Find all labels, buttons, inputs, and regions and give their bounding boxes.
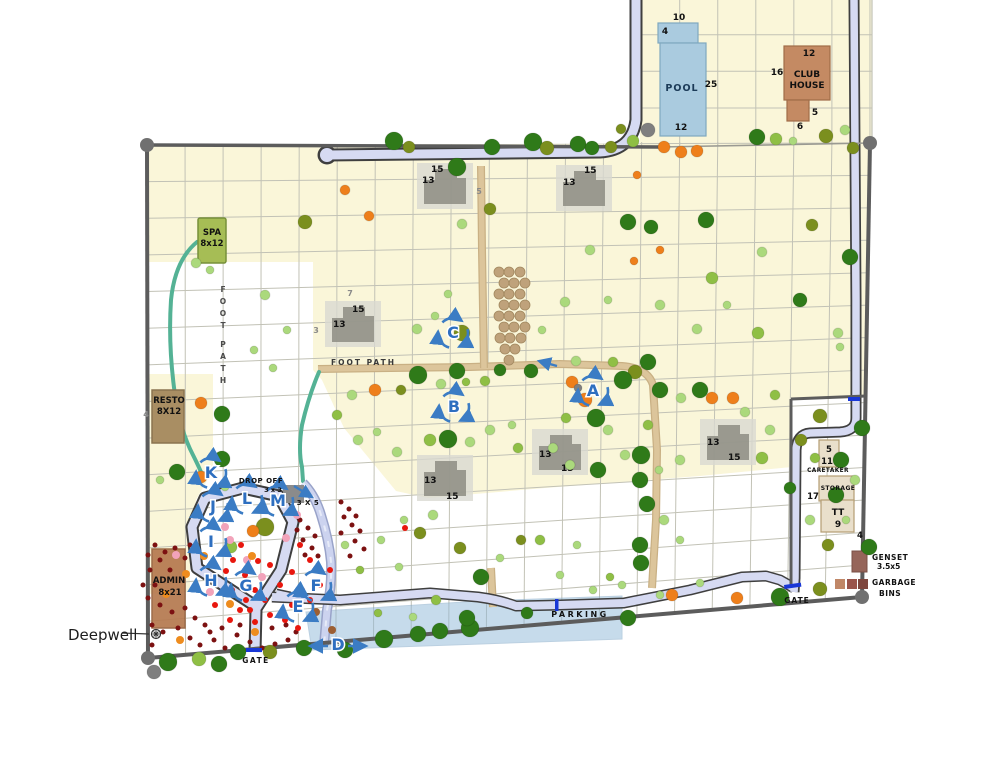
tree <box>428 510 438 520</box>
marker-letter: L <box>242 489 252 508</box>
gravel-dot <box>499 322 509 332</box>
flower-dot <box>267 612 273 618</box>
tree <box>560 297 570 307</box>
tree <box>211 656 227 672</box>
flower-dot <box>188 543 193 548</box>
tree <box>723 301 731 309</box>
flower-dot <box>208 630 213 635</box>
footpath-h-label: FOOT PATH <box>331 358 396 367</box>
tree <box>373 428 381 436</box>
flower-dot <box>362 547 367 552</box>
tree <box>454 542 466 554</box>
tree <box>756 452 768 464</box>
flower-dot <box>313 534 318 539</box>
tree <box>813 409 827 423</box>
tree <box>513 443 523 453</box>
gravel-dot <box>495 333 505 343</box>
tree <box>444 290 452 298</box>
tree <box>691 145 703 157</box>
tree <box>706 272 718 284</box>
flower-dot <box>289 569 295 575</box>
unit-gray-5: 5 <box>476 187 482 196</box>
clubhouse-n-below: 6 <box>797 122 803 132</box>
flower-dot <box>158 558 163 563</box>
tree <box>608 357 618 367</box>
tree <box>640 354 656 370</box>
tree <box>524 364 538 378</box>
flower-dot <box>188 636 193 641</box>
tree <box>840 125 850 135</box>
flower-dot <box>303 553 308 558</box>
tree <box>727 392 739 404</box>
tree <box>587 409 605 427</box>
tree <box>585 141 599 155</box>
marker-letter: I <box>208 532 214 551</box>
flower-dot <box>183 606 188 611</box>
resto-n-left: 4 <box>143 410 149 419</box>
tree <box>698 212 714 228</box>
tree <box>850 475 860 485</box>
flower-dot <box>307 557 313 563</box>
marker-letter: C <box>447 323 459 342</box>
tree <box>806 219 818 231</box>
tree <box>757 247 767 257</box>
tree <box>793 293 807 307</box>
flower-dot <box>277 582 283 588</box>
tree <box>819 129 833 143</box>
tree <box>396 385 406 395</box>
flower-dot <box>223 646 228 651</box>
site-plan-svg: 151315131513151315131513 ABCDEFGHIJKLM 1… <box>0 0 1000 768</box>
tree <box>192 652 206 666</box>
tree <box>206 266 214 274</box>
flower-dot <box>262 597 268 603</box>
unit-dim-15: 15 <box>584 166 597 176</box>
flower-dot <box>170 610 175 615</box>
flower-dot <box>270 626 275 631</box>
tree <box>195 397 207 409</box>
tree <box>643 420 653 430</box>
parking-label: PARKING <box>551 610 608 619</box>
tree <box>655 300 665 310</box>
gravel-dot <box>494 311 504 321</box>
flower-dot <box>339 500 344 505</box>
tree <box>805 515 815 525</box>
flower-dot <box>258 573 266 581</box>
tree <box>620 610 636 626</box>
garbage-line2: BINS <box>879 589 901 598</box>
tree <box>409 366 427 384</box>
tree <box>480 376 490 386</box>
unit-gray-7: 7 <box>347 289 353 298</box>
flower-dot <box>150 643 155 648</box>
marker-letter: G <box>239 576 252 595</box>
clubhouse-n-annex: 5 <box>812 108 818 118</box>
tree <box>449 363 465 379</box>
tree <box>770 133 782 145</box>
unit-dim-13: 13 <box>422 176 435 186</box>
flower-dot <box>293 511 301 519</box>
gravel-dot <box>504 355 514 365</box>
tree <box>692 324 702 334</box>
marker-letter: D <box>331 635 344 654</box>
tree <box>565 460 575 470</box>
flower-dot <box>146 596 151 601</box>
flower-dot <box>220 626 225 631</box>
tree <box>749 129 765 145</box>
flower-dot <box>353 539 358 544</box>
garbage-bin <box>835 579 845 589</box>
marker-letter: E <box>293 597 304 616</box>
flower-dot <box>310 546 315 551</box>
tree <box>752 327 764 339</box>
tree <box>484 203 496 215</box>
pool-n-bottom: 12 <box>675 123 688 133</box>
genset-line2: 3.5x5 <box>877 562 900 571</box>
tree <box>508 421 516 429</box>
flower-dot <box>286 638 291 643</box>
unit-dim-13: 13 <box>707 438 720 448</box>
tree <box>159 653 177 671</box>
gravel-dot <box>500 344 510 354</box>
gravel-dot <box>509 278 519 288</box>
tree <box>431 312 439 320</box>
tree <box>810 453 820 463</box>
tree <box>556 571 564 579</box>
tt-n-road: 4 <box>857 531 863 541</box>
gate-rear-label: GATE <box>784 596 810 605</box>
pool-n-right: 25 <box>705 80 718 90</box>
tt-line2: 9 <box>835 520 841 530</box>
flower-dot <box>301 538 306 543</box>
tree <box>833 328 843 338</box>
gravel-dot <box>515 267 525 277</box>
tree <box>606 573 614 581</box>
flower-dot <box>223 568 229 574</box>
flower-dot <box>153 543 158 548</box>
unit-gray-3: 3 <box>313 326 319 335</box>
clubhouse-annex <box>787 100 809 121</box>
flower-dot <box>176 636 184 644</box>
tree <box>605 141 617 153</box>
pool-label: POOL <box>665 83 698 94</box>
tree <box>632 446 650 464</box>
tree <box>620 450 630 460</box>
tree <box>632 537 648 553</box>
tree <box>614 371 632 389</box>
tree <box>813 582 827 596</box>
flower-dot <box>238 542 244 548</box>
tree <box>652 382 668 398</box>
tree <box>770 390 780 400</box>
flower-dot <box>148 568 153 573</box>
garbage-bin <box>847 579 857 589</box>
flower-dot <box>150 623 155 628</box>
flower-dot <box>316 554 321 559</box>
caretaker-label: CARETAKER <box>807 468 849 474</box>
tree <box>147 665 161 679</box>
tree <box>457 219 467 229</box>
genset-line1: GENSET <box>872 553 909 562</box>
tree <box>436 379 446 389</box>
tree <box>842 249 858 265</box>
corner-dot <box>141 651 155 665</box>
spa-line1: SPA <box>203 228 222 238</box>
unit-dim-15: 15 <box>728 453 741 463</box>
tree <box>641 123 655 137</box>
tree <box>473 569 489 585</box>
unit-cottage: 1513 <box>532 429 588 475</box>
corner-dot <box>863 136 877 150</box>
dropoff-label: DROP OFF <box>239 477 283 485</box>
clubhouse-n-left: 16 <box>771 68 784 78</box>
tree <box>585 245 595 255</box>
flower-dot <box>168 568 173 573</box>
flower-dot <box>347 507 352 512</box>
flower-dot <box>146 553 151 558</box>
tree <box>424 434 436 446</box>
flower-dot <box>252 587 258 593</box>
tree <box>740 407 750 417</box>
tree <box>639 496 655 512</box>
tree <box>854 420 870 436</box>
tree <box>459 610 475 626</box>
tree <box>627 135 639 147</box>
admin-line1: ADMIN <box>153 576 185 586</box>
clubhouse-line2: HOUSE <box>789 81 824 91</box>
tree <box>392 447 402 457</box>
tree <box>377 536 385 544</box>
flower-dot <box>348 554 353 559</box>
tree <box>296 640 312 656</box>
flower-dot <box>358 529 363 534</box>
tree <box>836 343 844 351</box>
flower-dot <box>183 556 188 561</box>
tree <box>385 132 403 150</box>
tree <box>414 527 426 539</box>
gravel-dot <box>516 333 526 343</box>
storage-label: STORAGE <box>821 485 856 492</box>
tree <box>374 609 382 617</box>
flower-dot <box>141 583 146 588</box>
gravel-dot <box>520 322 530 332</box>
tree <box>795 434 807 446</box>
flower-dot <box>251 628 259 636</box>
clubhouse-line1: CLUB <box>794 70 820 80</box>
flower-dot <box>350 523 355 528</box>
tt-line1: TT <box>832 508 845 518</box>
tree <box>369 384 381 396</box>
flower-dot <box>243 597 249 603</box>
tree <box>765 425 775 435</box>
flower-dot <box>282 534 290 542</box>
storage-n-left: 17 <box>807 492 819 502</box>
tree <box>410 626 426 642</box>
flower-dot <box>238 623 243 628</box>
tree <box>656 591 664 599</box>
flower-dot <box>173 546 178 551</box>
tree <box>431 595 441 605</box>
tree <box>524 133 542 151</box>
tree <box>214 406 230 422</box>
tree <box>590 462 606 478</box>
flower-dot <box>402 525 408 531</box>
tree <box>603 425 613 435</box>
unit-cottage: 1513 <box>417 455 473 502</box>
tree <box>353 435 363 445</box>
tree <box>496 554 504 562</box>
corner-dot <box>855 590 869 604</box>
tree <box>784 482 796 494</box>
pool-n-top: 10 <box>673 13 686 23</box>
tree <box>364 211 374 221</box>
tree <box>521 607 533 619</box>
tree <box>676 536 684 544</box>
flower-dot <box>237 607 243 613</box>
dropoff-size-b: 3 X 5 <box>297 499 320 507</box>
caretaker-n2: 11 <box>821 457 833 467</box>
tree <box>169 464 185 480</box>
flower-dot <box>247 607 253 613</box>
tree <box>298 215 312 229</box>
tree <box>675 146 687 158</box>
unit-cottage: 1513 <box>700 419 756 465</box>
tree <box>409 613 417 621</box>
flower-dot <box>354 514 359 519</box>
flower-dot <box>230 557 236 563</box>
marker-letter: J <box>209 497 216 516</box>
tree <box>658 141 670 153</box>
deepwell-label: Deepwell <box>68 626 137 644</box>
dropoff-size-a: 3 x 3 <box>264 486 282 494</box>
gravel-dot <box>515 289 525 299</box>
tree <box>395 563 403 571</box>
flower-dot <box>203 623 208 628</box>
tree <box>462 378 470 386</box>
tree <box>448 158 466 176</box>
flower-dot <box>248 640 253 645</box>
flower-dot <box>158 603 163 608</box>
tree <box>692 382 708 398</box>
unit-cottage: 1513 <box>556 165 612 211</box>
tree <box>789 137 797 145</box>
tree <box>332 410 342 420</box>
tree <box>604 296 612 304</box>
gate-main-label: GATE <box>242 656 270 665</box>
pool-n-left: 4 <box>662 27 668 37</box>
tree <box>616 124 626 134</box>
gravel-dot <box>510 344 520 354</box>
flower-dot <box>284 623 289 628</box>
flower-dot <box>227 617 233 623</box>
site-plan-page: { "facilities": { "pool": {"label":"POOL… <box>0 0 1000 768</box>
marker-letter: K <box>205 463 218 482</box>
resto-line2: 8X12 <box>157 407 181 417</box>
flower-dot <box>221 523 229 531</box>
tree <box>341 541 349 549</box>
flower-dot <box>295 625 301 631</box>
tree <box>675 455 685 465</box>
tree <box>540 141 554 155</box>
flower-dot <box>339 531 344 536</box>
admin-line2: 8x21 <box>158 588 181 598</box>
tree <box>356 566 364 574</box>
tree <box>494 364 506 376</box>
gravel-dot <box>499 278 509 288</box>
gravel-dot <box>499 300 509 310</box>
tree <box>465 437 475 447</box>
tree <box>571 356 581 366</box>
flower-dot <box>328 626 336 634</box>
tree <box>269 364 277 372</box>
gate-bar <box>246 648 262 652</box>
gravel-dot <box>494 267 504 277</box>
tree <box>250 346 258 354</box>
flower-dot <box>297 542 303 548</box>
gravel-dot <box>494 289 504 299</box>
marker-letter: F <box>311 576 322 595</box>
flower-dot <box>172 551 180 559</box>
gravel-dot <box>504 311 514 321</box>
flower-dot <box>295 528 300 533</box>
gravel-dot <box>509 322 519 332</box>
flower-dot <box>342 515 347 520</box>
tree <box>659 515 669 525</box>
tree <box>191 258 201 268</box>
tree <box>484 139 500 155</box>
flower-dot <box>273 642 278 647</box>
tree <box>618 581 626 589</box>
flower-dot <box>163 550 168 555</box>
tree <box>340 185 350 195</box>
tree <box>400 516 408 524</box>
tree <box>403 141 415 153</box>
marker-letter: B <box>448 397 460 416</box>
tree <box>548 443 558 453</box>
tree <box>833 452 849 468</box>
flower-dot <box>198 643 203 648</box>
unit-dim-13: 13 <box>333 320 346 330</box>
tree <box>630 257 638 265</box>
tree <box>538 326 546 334</box>
tree <box>156 476 164 484</box>
flower-dot <box>252 619 258 625</box>
flower-dot <box>176 626 181 631</box>
tree <box>696 579 704 587</box>
gravel-dot <box>505 333 515 343</box>
unit-dim-15: 15 <box>431 165 444 175</box>
garbage-bin <box>858 579 868 589</box>
flower-dot <box>267 562 273 568</box>
gravel-dot <box>504 267 514 277</box>
tree <box>676 393 686 403</box>
marker-letter: A <box>587 381 600 400</box>
flower-dot <box>212 638 217 643</box>
tree <box>573 541 581 549</box>
tree <box>666 589 678 601</box>
tree <box>247 525 259 537</box>
gravel-dot <box>520 278 530 288</box>
unit-cottage: 1513 <box>325 301 381 347</box>
resto-line1: RESTO <box>153 396 185 406</box>
tree <box>535 535 545 545</box>
tree <box>375 630 393 648</box>
gravel-dot <box>520 300 530 310</box>
tree <box>655 466 663 474</box>
garbage-line1: GARBAGE <box>872 578 916 587</box>
flower-dot <box>226 600 234 608</box>
tree <box>620 214 636 230</box>
